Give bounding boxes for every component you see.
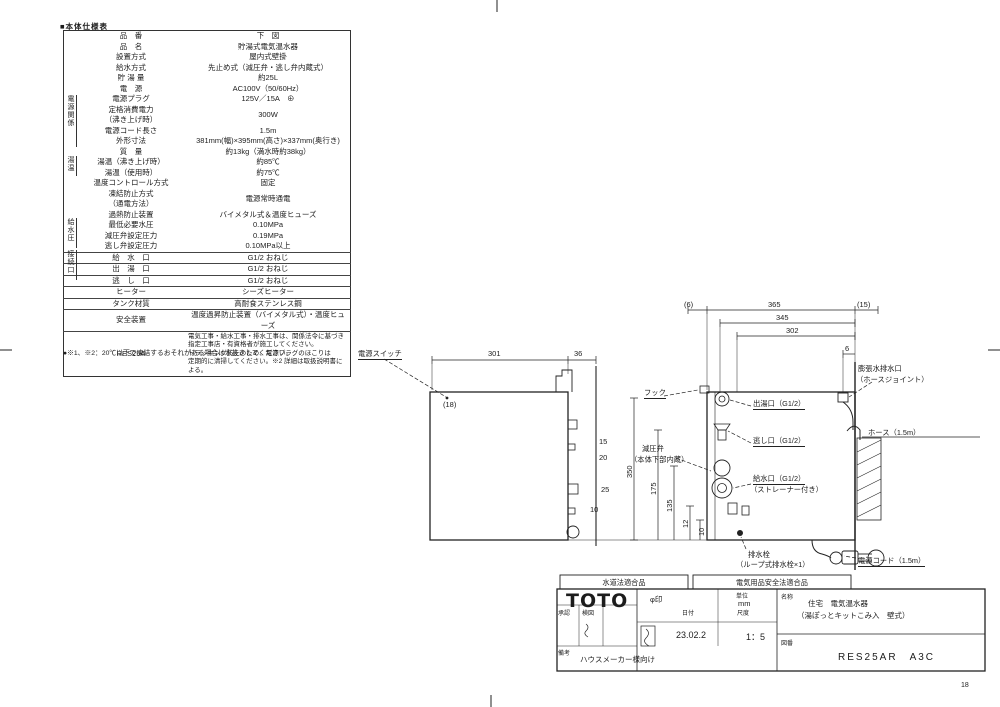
- spec-row: タンク材質高耐食ステンレス鋼: [64, 298, 351, 310]
- expansion-port-sublabel: （ホースジョイント）: [856, 375, 929, 385]
- drawing-sheet: ■本体仕様表 品 番下 図品 名貯湯式電気温水器設置方式屋内式壁掛給水方式先止め…: [0, 0, 1000, 707]
- spec-group-temp: 湯温: [65, 156, 77, 176]
- spec-row: 出 湯 口G1/2 おねじ: [64, 264, 351, 276]
- spec-group-pressure: 給水圧: [65, 218, 77, 248]
- dim-10b: 10: [697, 528, 706, 536]
- spec-row: 定格消費電力（沸き上げ時）300W: [64, 105, 351, 126]
- dim-175: 175: [649, 482, 658, 495]
- page-number: 18: [961, 682, 969, 689]
- pressure-valve-sublabel: （本体下部内蔵）: [630, 455, 688, 465]
- inlet-port-label: 給水口（G1/2）: [753, 474, 805, 485]
- drawing-number-value: RES25AR A3C: [838, 648, 935, 663]
- audience-note: ハウスメーカー様向け: [580, 654, 655, 665]
- spec-row: ヒーターシーズヒーター: [64, 287, 351, 299]
- dim-350: 350: [625, 465, 634, 478]
- date-value: 23.02.2: [676, 630, 706, 640]
- product-name-line2: （湯ぽっとキットこみ入 壁式）: [797, 610, 910, 621]
- spec-row: 逃し弁設定圧力0.10MPa以上: [64, 241, 351, 252]
- unit-value: mm: [738, 599, 751, 608]
- spec-row: 湯温（使用時）約75℃: [64, 168, 351, 179]
- spec-row: 品 名貯湯式電気温水器: [64, 42, 351, 53]
- front-view: [664, 306, 980, 570]
- dim-switch-offset: (18): [443, 400, 456, 409]
- spec-row: 凍結防止方式（通電方法）電源常時通電: [64, 189, 351, 210]
- phi-mark-label: φ印: [650, 594, 662, 605]
- spec-footnote: ●※1、※2：20℃以下で凍結するおそれがある場合は水抜きしてください。: [63, 347, 293, 357]
- side-view: [384, 356, 596, 546]
- dim-10: 10: [590, 505, 598, 514]
- spec-row: 外形寸法381mm(幅)×395mm(高さ)×337mm(奥行き): [64, 136, 351, 147]
- spec-row: 質 量約13kg（満水時約38kg）: [64, 147, 351, 158]
- scale-label: 尺度: [737, 608, 749, 617]
- dim-6-left: (6): [684, 300, 693, 309]
- dim-20: 20: [599, 453, 607, 462]
- toto-logo: TOTO: [566, 590, 628, 612]
- dim-12: 12: [681, 520, 690, 528]
- drain-plug-sublabel: （ループ式排水栓×1）: [736, 560, 810, 570]
- spec-row: 給水方式先止め式（減圧弁・逃し弁内蔵式）: [64, 63, 351, 74]
- spec-row: 減圧弁設定圧力0.19MPa: [64, 231, 351, 242]
- dim-side-width: 301: [488, 349, 501, 358]
- name-label: 名称: [781, 592, 793, 601]
- spec-group-connections: 接続口: [65, 250, 77, 280]
- scale-value: 1：5: [746, 630, 765, 643]
- dim-345: 345: [776, 313, 789, 322]
- spec-row: 電源プラグ125V／15A ⊕: [64, 94, 351, 105]
- power-cord-label: 電源コード（1.5m）: [858, 556, 925, 567]
- product-name-line1: 住宅 電気温水器: [808, 598, 868, 609]
- dim-15: 15: [599, 437, 607, 446]
- dim-365: 365: [768, 300, 781, 309]
- spec-table: 品 番下 図品 名貯湯式電気温水器設置方式屋内式壁掛給水方式先止め式（減圧弁・逃…: [63, 30, 351, 377]
- date-label: 日付: [682, 608, 694, 617]
- drawing-number-label: 図番: [781, 638, 793, 647]
- spec-row: 最低必要水圧0.10MPa: [64, 220, 351, 231]
- tab-water-law: 水道法適合品: [560, 578, 688, 588]
- approve-label: 承認: [558, 608, 570, 617]
- spec-group-power: 電源関係: [65, 95, 77, 147]
- spec-row: 給 水 口G1/2 おねじ: [64, 252, 351, 264]
- pressure-valve-label: 減圧弁: [642, 444, 664, 454]
- drain-plug-label: 排水栓: [748, 550, 770, 560]
- spec-row: 電源コード長さ1.5m: [64, 126, 351, 137]
- spec-row: 安全装置温度過昇防止装置（バイメタル式）・温度ヒューズ: [64, 310, 351, 332]
- inlet-port-sublabel: （ストレーナー付き）: [750, 485, 823, 495]
- power-switch-label: 電源スイッチ: [358, 349, 402, 360]
- spec-row: 設置方式屋内式壁掛: [64, 52, 351, 63]
- relief-port-label: 逃し口（G1/2）: [753, 436, 805, 447]
- dim-6: 6: [845, 344, 849, 353]
- spec-row: 逃 し 口G1/2 おねじ: [64, 275, 351, 287]
- note-label: 備考: [558, 648, 570, 657]
- hose-label: ホース（1.5m）: [868, 428, 920, 438]
- outlet-port-label: 出湯口（G1/2）: [753, 399, 805, 410]
- spec-row: 電 源AC100V（50/60Hz）: [64, 84, 351, 95]
- hook-label: フック: [644, 388, 666, 399]
- dim-bracket-depth: 36: [574, 349, 582, 358]
- spec-row: 貯 湯 量約25L: [64, 73, 351, 84]
- dim-302: 302: [786, 326, 799, 335]
- dim-135: 135: [665, 499, 674, 512]
- dim-25: 25: [601, 485, 609, 494]
- tab-electrical-law: 電気用品安全法適合品: [693, 578, 851, 588]
- spec-row: 品 番下 図: [64, 31, 351, 42]
- dim-15-right: (15): [857, 300, 870, 309]
- spec-row: 過熱防止装置バイメタル式＆温度ヒューズ: [64, 210, 351, 221]
- expansion-port-label: 膨張水排水口: [858, 364, 902, 374]
- spec-row: 湯温（沸き上げ時）約85℃: [64, 157, 351, 168]
- check-label: 検図: [582, 608, 594, 617]
- spec-row: 温度コントロール方式固定: [64, 178, 351, 189]
